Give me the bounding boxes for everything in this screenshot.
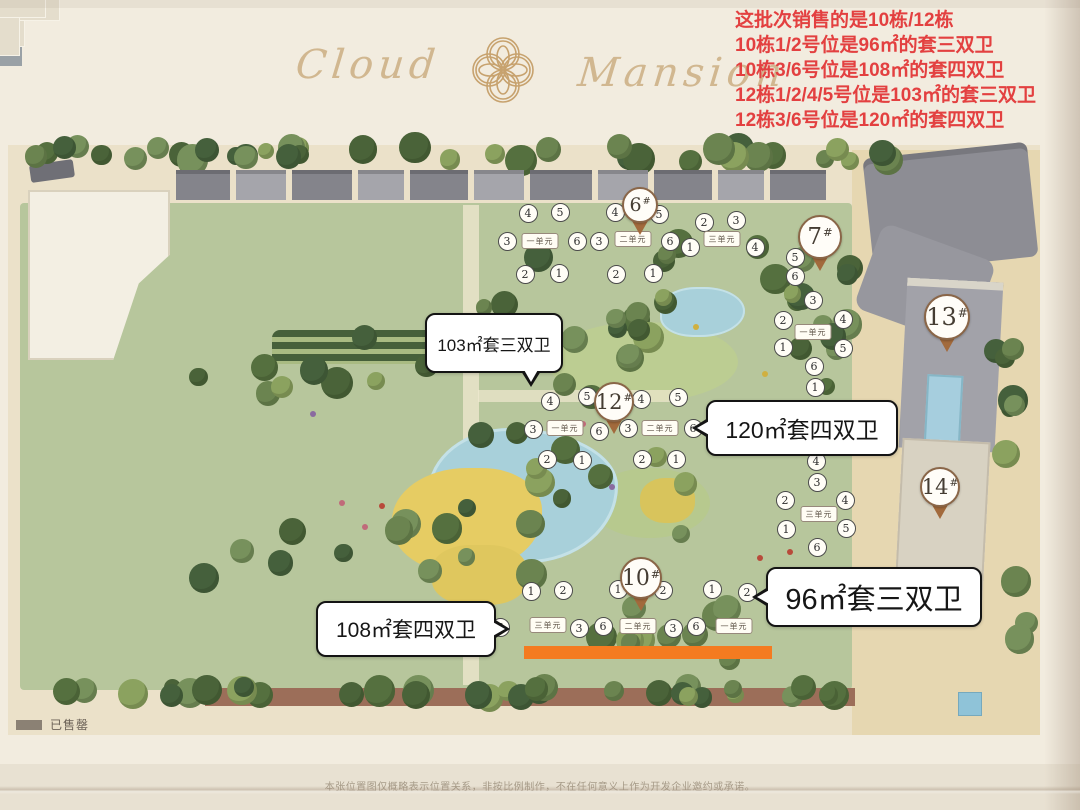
sold-out-label: 已售罄 bbox=[50, 716, 89, 733]
callout-108: 108㎡套四双卫 bbox=[316, 601, 496, 657]
callout-text: 96㎡套三双卫 bbox=[785, 576, 962, 618]
sold-out-swatch bbox=[16, 720, 42, 730]
callout-96: 96㎡套三双卫 bbox=[766, 567, 982, 627]
site-plan-photo: 4536214536212314564536214536211263126312… bbox=[0, 0, 1080, 810]
callout-103: 103㎡套三双卫 bbox=[425, 313, 563, 373]
brand-logo-icon bbox=[466, 26, 540, 123]
disclaimer-text: 本张位置图仅概略表示位置关系，非按比例制作，不在任何意义上作为开发企业邀约或承诺… bbox=[270, 778, 810, 793]
annotation-line: 10栋1/2号位是96㎡的套三双卫 bbox=[735, 33, 1037, 58]
annotation-line: 这批次销售的是10栋/12栋 bbox=[735, 8, 1037, 33]
callout-text: 103㎡套三双卫 bbox=[437, 331, 550, 356]
title-word-cloud: Cloud bbox=[294, 42, 443, 88]
annotation-line: 10栋3/6号位是108㎡的套四双卫 bbox=[735, 58, 1037, 83]
annotation-line: 12栋3/6号位是120㎡的套四双卫 bbox=[735, 108, 1037, 133]
legend: 已售罄 bbox=[16, 716, 89, 733]
sales-annotation: 这批次销售的是10栋/12栋 10栋1/2号位是96㎡的套三双卫 10栋3/6号… bbox=[735, 8, 1037, 133]
callout-120: 120㎡套四双卫 bbox=[706, 400, 898, 456]
callout-text: 108㎡套四双卫 bbox=[336, 614, 476, 644]
callout-text: 120㎡套四双卫 bbox=[725, 411, 878, 445]
annotation-line: 12栋1/2/4/5号位是103㎡的套三双卫 bbox=[735, 83, 1037, 108]
